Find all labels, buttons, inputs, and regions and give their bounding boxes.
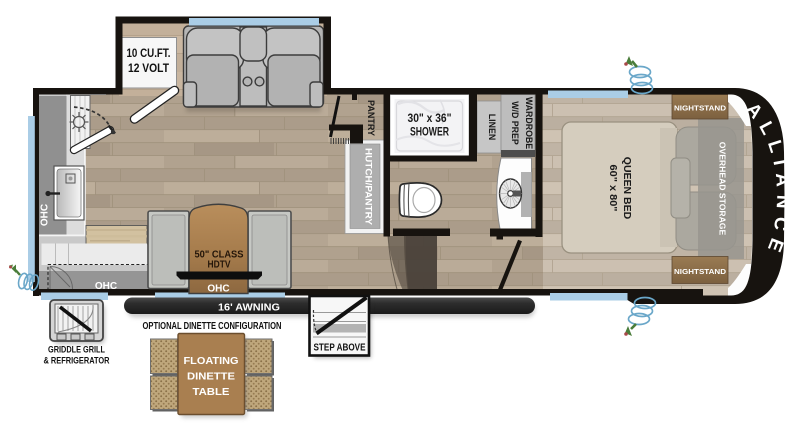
svg-text:TABLE: TABLE [193, 387, 230, 398]
svg-text:HDTV: HDTV [208, 259, 231, 271]
svg-text:NIGHTSTAND: NIGHTSTAND [674, 267, 727, 276]
svg-text:STEP ABOVE: STEP ABOVE [314, 343, 366, 354]
svg-text:12 VOLT: 12 VOLT [128, 63, 169, 75]
svg-text:16' AWNING: 16' AWNING [218, 302, 280, 314]
svg-text:QUEEN BED: QUEEN BED [621, 157, 633, 220]
svg-text:W/D PREP: W/D PREP [510, 101, 520, 145]
svg-text:30" x 36": 30" x 36" [408, 113, 452, 125]
svg-text:OHC: OHC [207, 284, 229, 295]
svg-text:GRIDDLE GRILL: GRIDDLE GRILL [48, 345, 105, 355]
svg-text:DINETTE: DINETTE [187, 372, 235, 383]
svg-text:& REFRIGERATOR: & REFRIGERATOR [44, 356, 110, 366]
svg-text:60" x 80": 60" x 80" [607, 165, 619, 212]
svg-text:PANTRY: PANTRY [366, 100, 376, 136]
svg-text:WARDROBE: WARDROBE [524, 97, 534, 149]
svg-text:NIGHTSTAND: NIGHTSTAND [674, 104, 727, 113]
svg-text:10 CU.FT.: 10 CU.FT. [127, 48, 171, 60]
svg-text:FLOATING: FLOATING [184, 356, 239, 367]
svg-text:OPTIONAL DINETTE CONFIGURATION: OPTIONAL DINETTE CONFIGURATION [143, 321, 282, 332]
svg-text:HUTCH/PANTRY: HUTCH/PANTRY [363, 148, 374, 226]
svg-text:OHC: OHC [40, 204, 51, 226]
svg-text:LINEN: LINEN [487, 114, 497, 140]
svg-text:OVERHEAD STORAGE: OVERHEAD STORAGE [718, 142, 728, 236]
svg-text:SHOWER: SHOWER [410, 127, 450, 139]
